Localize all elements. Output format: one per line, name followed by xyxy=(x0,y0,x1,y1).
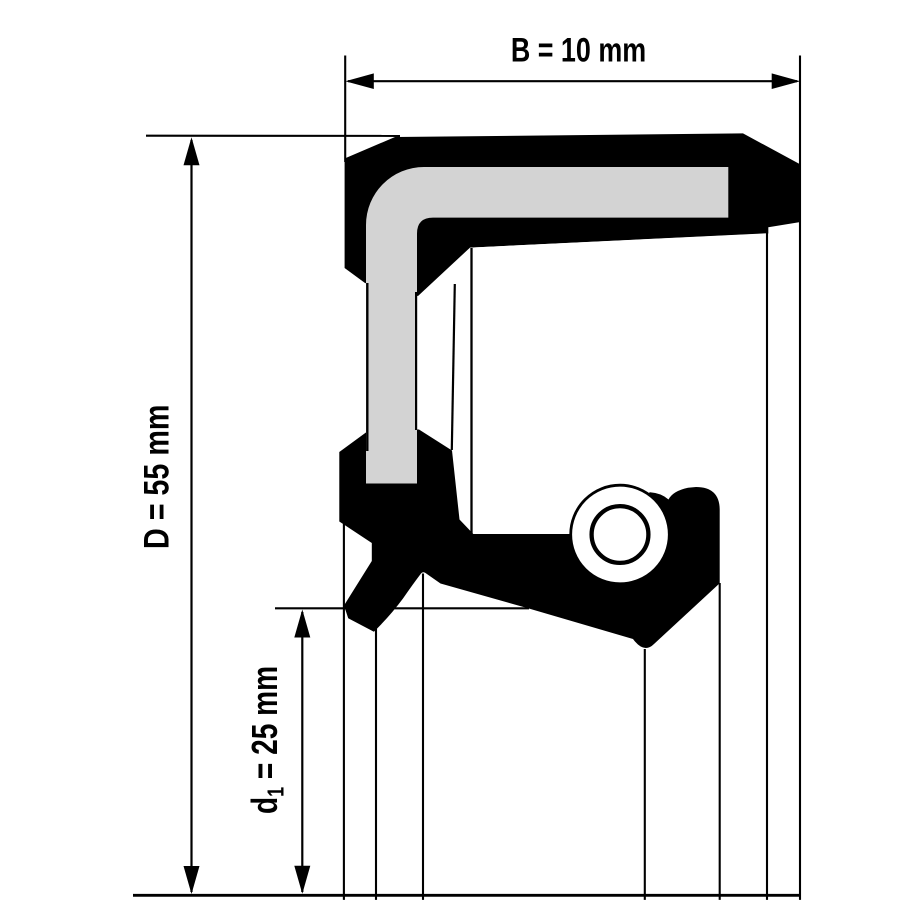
svg-text:D = 55 mm: D = 55 mm xyxy=(137,405,176,549)
svg-text:B = 10 mm: B = 10 mm xyxy=(511,30,646,69)
